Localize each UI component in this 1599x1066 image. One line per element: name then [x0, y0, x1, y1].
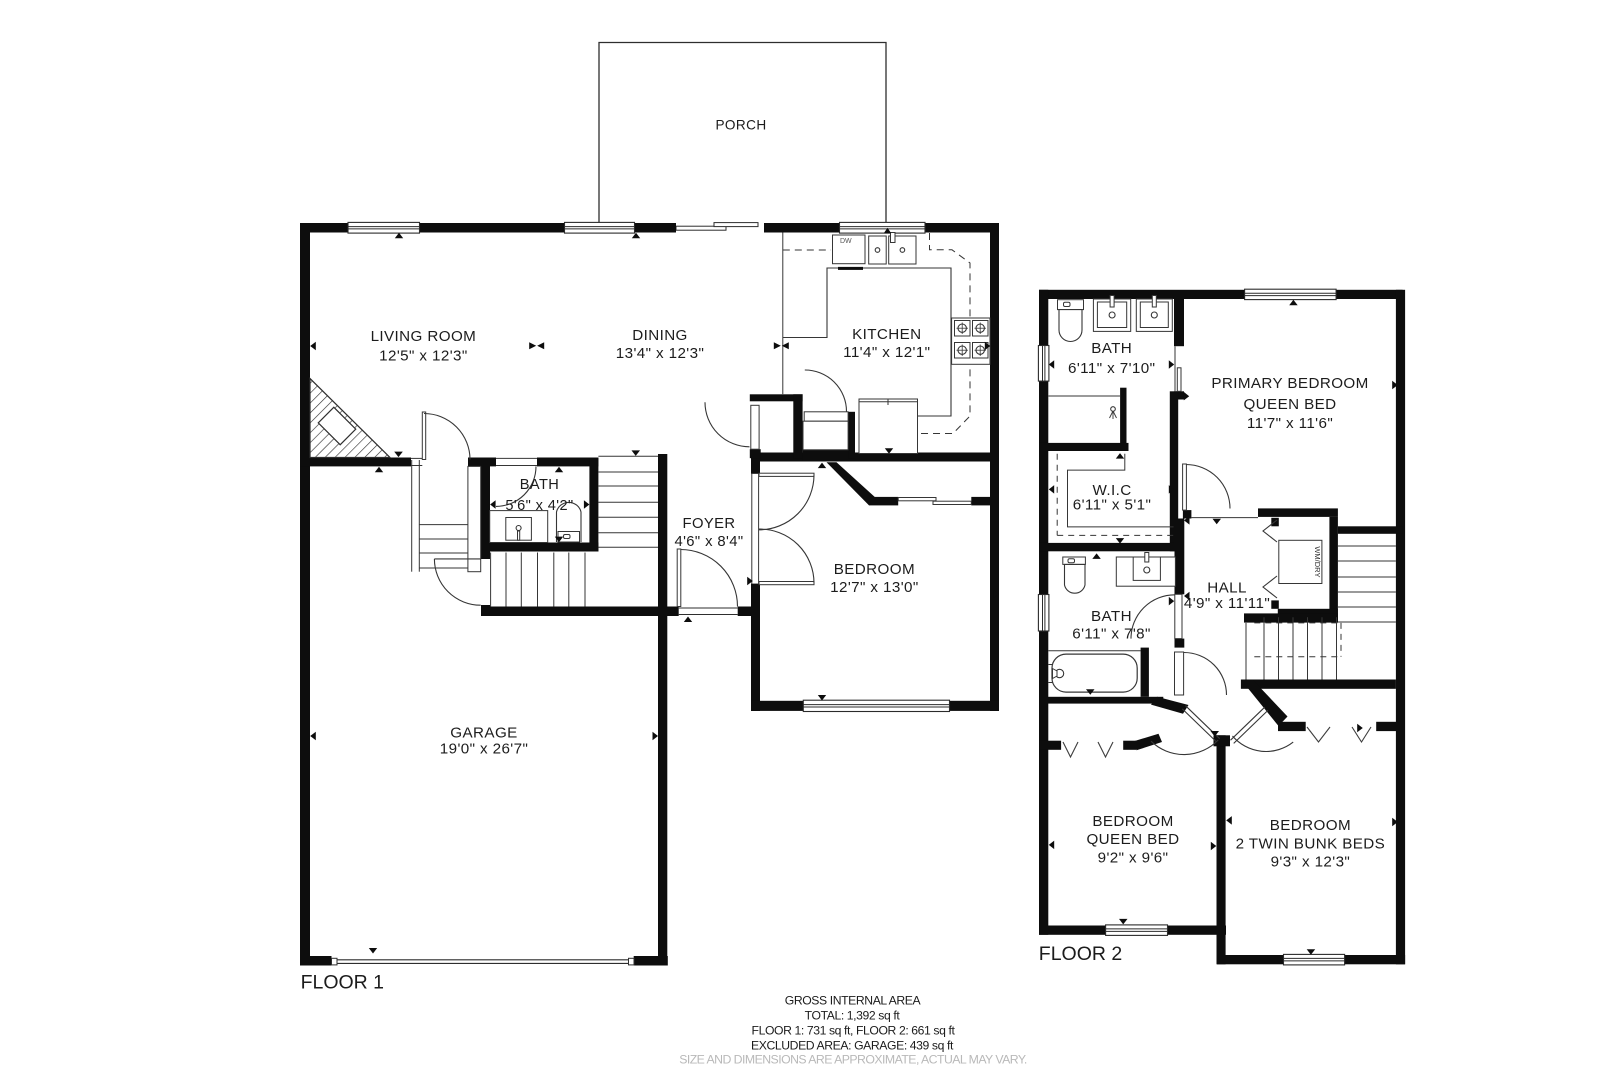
svg-text:QUEEN BED: QUEEN BED — [1086, 831, 1179, 848]
svg-text:BATH: BATH — [1091, 608, 1132, 625]
svg-text:12'7" x 13'0": 12'7" x 13'0" — [830, 579, 919, 596]
svg-text:BEDROOM: BEDROOM — [834, 561, 915, 578]
svg-text:12'5" x 12'3": 12'5" x 12'3" — [379, 347, 468, 364]
svg-text:13'4" x 12'3": 13'4" x 12'3" — [616, 345, 705, 362]
svg-text:11'7" x 11'6": 11'7" x 11'6" — [1247, 415, 1333, 432]
svg-text:DINING: DINING — [632, 327, 688, 344]
svg-text:WM/DRY: WM/DRY — [1313, 546, 1322, 577]
svg-text:BATH: BATH — [520, 477, 559, 493]
svg-text:PRIMARY BEDROOM: PRIMARY BEDROOM — [1211, 375, 1368, 392]
svg-text:BEDROOM: BEDROOM — [1092, 813, 1173, 830]
svg-text:EXCLUDED AREA: GARAGE: 439 sq: EXCLUDED AREA: GARAGE: 439 sq ft — [751, 1039, 954, 1053]
svg-text:11'4" x 12'1": 11'4" x 12'1" — [843, 344, 930, 361]
svg-text:4'9" x 11'11": 4'9" x 11'11" — [1184, 595, 1270, 612]
svg-text:SIZE AND DIMENSIONS ARE APPROX: SIZE AND DIMENSIONS ARE APPROXIMATE, ACT… — [679, 1053, 1027, 1066]
svg-text:GROSS INTERNAL AREA: GROSS INTERNAL AREA — [785, 993, 922, 1007]
svg-text:FLOOR 1: 731 sq ft, FLOOR 2: 6: FLOOR 1: 731 sq ft, FLOOR 2: 661 sq ft — [752, 1024, 956, 1038]
svg-text:2 TWIN BUNK BEDS: 2 TWIN BUNK BEDS — [1236, 835, 1386, 852]
svg-text:19'0" x 26'7": 19'0" x 26'7" — [440, 741, 529, 758]
svg-text:BATH: BATH — [1091, 340, 1132, 357]
svg-text:LIVING ROOM: LIVING ROOM — [371, 328, 477, 345]
svg-text:9'2" x 9'6": 9'2" x 9'6" — [1098, 849, 1169, 866]
svg-text:DW: DW — [840, 238, 852, 245]
svg-text:GARAGE: GARAGE — [450, 724, 517, 741]
svg-text:FLOOR 1: FLOOR 1 — [301, 972, 384, 994]
svg-text:9'3" x 12'3": 9'3" x 12'3" — [1271, 853, 1351, 870]
svg-text:BEDROOM: BEDROOM — [1270, 817, 1351, 834]
svg-text:PORCH: PORCH — [715, 117, 766, 132]
svg-text:QUEEN BED: QUEEN BED — [1243, 396, 1336, 413]
svg-text:6'11" x 5'1": 6'11" x 5'1" — [1073, 497, 1152, 514]
svg-text:FOYER: FOYER — [683, 516, 736, 532]
svg-text:5'6" x 4'2": 5'6" x 4'2" — [505, 498, 573, 514]
svg-text:FLOOR 2: FLOOR 2 — [1039, 943, 1122, 965]
svg-text:KITCHEN: KITCHEN — [852, 326, 921, 343]
svg-text:TOTAL: 1,392 sq ft: TOTAL: 1,392 sq ft — [805, 1009, 901, 1023]
svg-text:6'11" x 7'10": 6'11" x 7'10" — [1068, 360, 1155, 377]
svg-text:6'11" x 7'8": 6'11" x 7'8" — [1072, 626, 1151, 643]
svg-text:4'6" x 8'4": 4'6" x 8'4" — [674, 534, 743, 550]
